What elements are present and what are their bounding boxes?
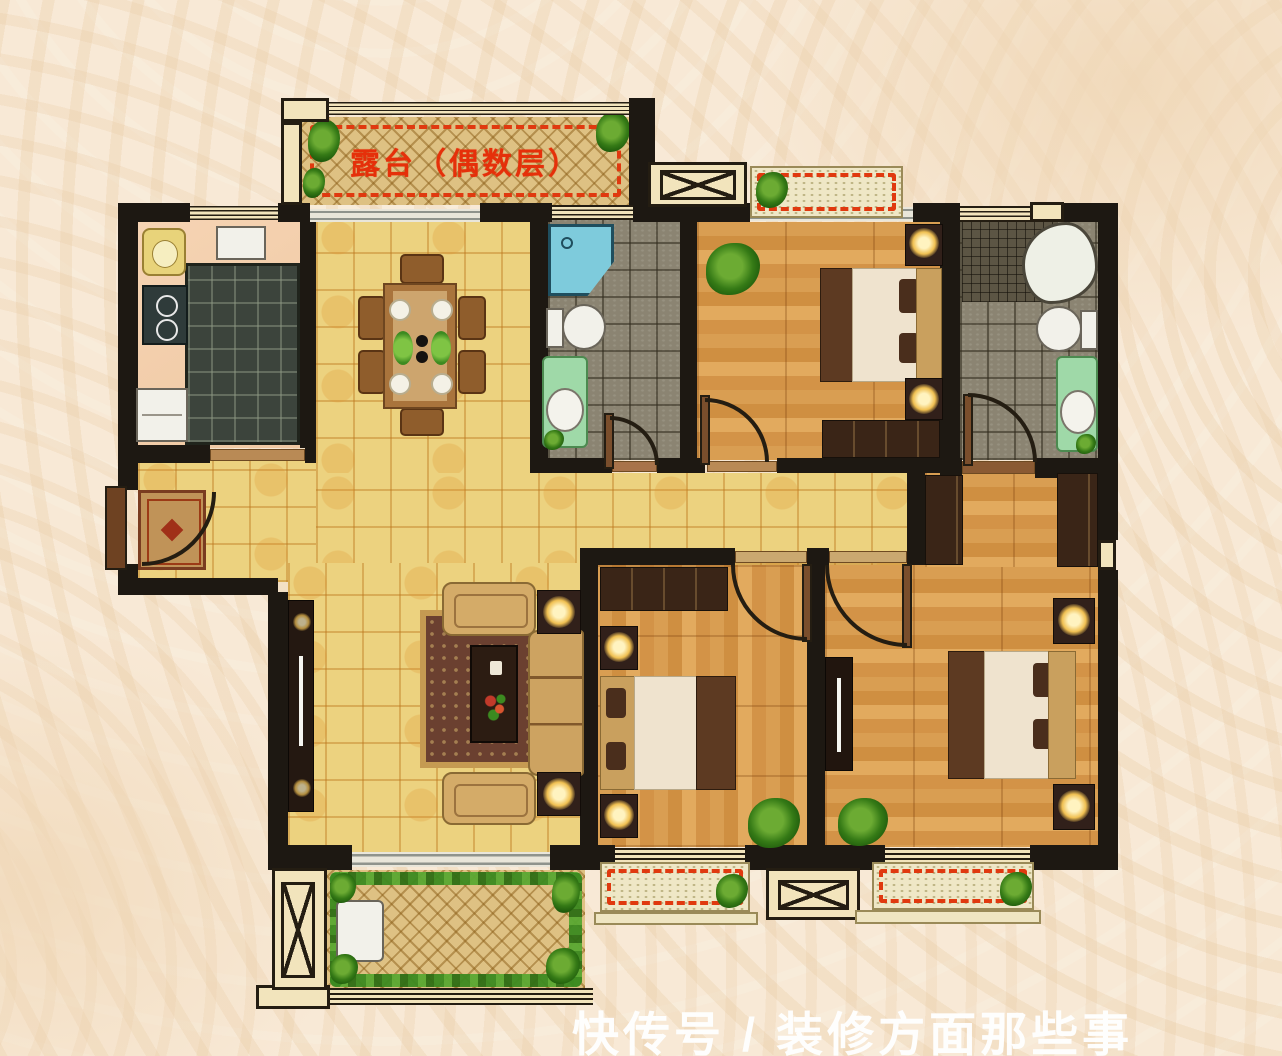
balcony-plant-border: [330, 872, 582, 885]
bedroom3-wardrobe: [925, 475, 963, 565]
bed-headboard: [916, 268, 942, 382]
lamp-glow-icon: [1058, 790, 1090, 822]
wall: [807, 565, 825, 870]
door-threshold: [210, 449, 305, 461]
wall: [940, 458, 962, 476]
tv-screen-icon: [837, 678, 841, 752]
bowl-icon: [416, 335, 428, 347]
bed-pillow: [606, 742, 626, 770]
bedroom2-bed: [598, 672, 736, 792]
shower-drain-icon: [561, 237, 573, 249]
stove-burner-icon: [156, 295, 178, 317]
sink-basin: [152, 240, 178, 268]
tv-screen-icon: [299, 656, 303, 746]
wall: [1030, 845, 1118, 870]
wall: [1098, 570, 1118, 870]
master-bathroom-window: [960, 206, 1030, 222]
bedroom3-tv-cabinet: [825, 657, 853, 771]
wall: [680, 218, 697, 458]
bathroom-sink: [546, 388, 584, 432]
door-threshold: [962, 461, 1035, 474]
entry-mat: [138, 490, 206, 570]
kitchen-sink: [142, 228, 186, 276]
plate-icon: [389, 299, 411, 321]
terrace-end-cap: [281, 98, 329, 122]
dining-chair: [358, 350, 386, 394]
armchair-seat-line: [454, 594, 528, 628]
door-threshold: [707, 461, 777, 472]
door-threshold: [612, 461, 657, 472]
dining-chair: [400, 408, 444, 436]
bed-mattress: [634, 676, 698, 790]
wall: [1098, 203, 1118, 540]
wall: [657, 458, 705, 473]
lamp-glow-icon: [543, 596, 575, 628]
cabinet-light-icon: [293, 613, 311, 631]
armchair-seat-line: [454, 784, 528, 817]
shaft-x-icon: [778, 880, 849, 910]
wall: [907, 473, 925, 565]
lamp-glow-icon: [543, 778, 575, 810]
wall: [305, 445, 316, 463]
stove-burner-icon: [156, 319, 178, 341]
terrace-label: 露台（偶数层）: [302, 117, 629, 205]
kitchen-fridge: [136, 388, 188, 442]
door-threshold: [735, 551, 807, 563]
living-tv-cabinet: [288, 600, 314, 812]
lamp-glow-icon: [1058, 604, 1090, 636]
kitchen-stove: [142, 285, 188, 345]
shaft-x-icon: [660, 170, 736, 200]
terrace-sliding-door: [310, 209, 480, 222]
wall: [807, 548, 829, 565]
bed-footboard: [820, 268, 854, 382]
balcony-window: [327, 988, 593, 1005]
dining-chair: [458, 350, 486, 394]
wall: [940, 218, 960, 458]
wall: [268, 845, 352, 870]
terrace-dashed-zone: 露台（偶数层）: [302, 117, 629, 205]
dining-chair: [458, 296, 486, 340]
bedroom3-wardrobe: [1057, 473, 1098, 567]
cabinet-light-icon: [293, 779, 311, 797]
toilet-bowl: [562, 304, 606, 350]
lamp-glow-icon: [909, 384, 939, 414]
wall: [745, 845, 885, 870]
kitchen-window: [190, 206, 278, 220]
shaft-x-icon: [281, 882, 315, 978]
watermark-text: 快传号 / 装修方面那些事: [572, 996, 1133, 1056]
bedroom1-bed: [815, 265, 943, 383]
kitchen-counter: [185, 263, 300, 445]
balcony-mat: [336, 900, 384, 962]
dining-chair: [358, 296, 386, 340]
door-threshold: [829, 551, 907, 563]
wall: [548, 458, 612, 473]
entry-door-leaf: [106, 487, 126, 569]
bowl-icon: [416, 351, 428, 363]
bed-pillow: [606, 688, 626, 718]
bathroom-sink: [1060, 390, 1096, 434]
lamp-glow-icon: [604, 800, 634, 830]
toilet-tank: [1080, 310, 1098, 350]
dining-table: [383, 283, 457, 409]
wall: [580, 548, 735, 565]
balcony-sliding-door: [352, 852, 550, 867]
bedroom1-dresser: [822, 420, 940, 458]
wall: [118, 445, 210, 463]
wall-window-cap: [1098, 540, 1116, 570]
toilet: [1036, 306, 1098, 354]
armchair: [442, 772, 536, 825]
plate-icon: [389, 373, 411, 395]
bed-footboard: [948, 651, 986, 779]
dining-chair: [400, 254, 444, 284]
flower-arrangement-icon: [480, 687, 510, 727]
balcony-plant-border: [330, 974, 582, 987]
kitchen-appliance: [216, 226, 266, 260]
sofa: [528, 630, 584, 776]
wall: [777, 458, 940, 473]
bed-headboard: [1048, 651, 1076, 779]
lamp-glow-icon: [909, 228, 939, 258]
remote-icon: [490, 661, 502, 675]
terrace-left-column: [281, 122, 302, 205]
window-sill: [855, 910, 1041, 924]
wall-window-cap: [1030, 202, 1064, 222]
lamp-glow-icon: [604, 632, 634, 662]
toilet-bowl: [1036, 306, 1082, 352]
coffee-table: [470, 645, 518, 743]
bedroom3-bed: [945, 647, 1095, 781]
plate-icon: [431, 299, 453, 321]
bathroom1-window: [552, 205, 633, 220]
wall: [268, 592, 288, 870]
fridge-divider: [142, 414, 182, 416]
bedroom2-wardrobe: [600, 567, 728, 611]
bed-footboard: [696, 676, 736, 790]
terrace-railing: [329, 102, 629, 115]
plate-icon: [431, 373, 453, 395]
armchair: [442, 582, 536, 636]
wall: [118, 578, 278, 595]
wall: [300, 218, 316, 448]
floor-plan-image: 露台（偶数层）: [0, 0, 1282, 1056]
dish-icon: [431, 331, 451, 365]
dish-icon: [393, 331, 413, 365]
window-sill: [594, 912, 758, 925]
toilet: [546, 304, 608, 352]
